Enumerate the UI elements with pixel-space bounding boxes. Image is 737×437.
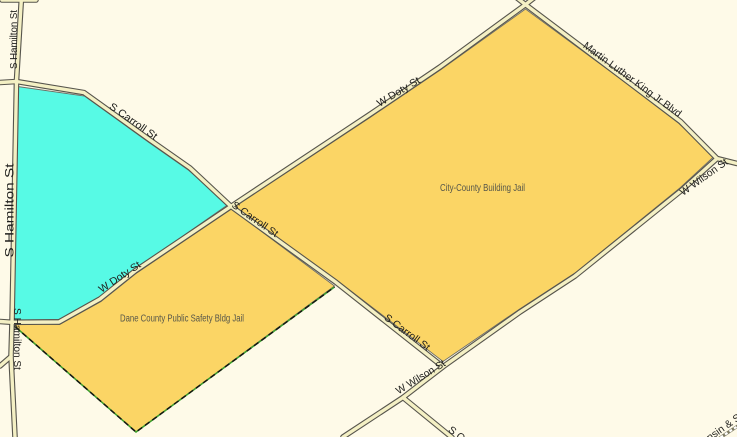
svg-text:S Hamilton St: S Hamilton St — [9, 10, 20, 69]
svg-text:Dane County Public Safety Bldg: Dane County Public Safety Bldg Jail — [120, 314, 244, 325]
svg-text:S Hamilton St: S Hamilton St — [11, 308, 22, 370]
svg-text:City-County Building Jail: City-County Building Jail — [440, 183, 525, 194]
svg-text:S Hamilton St: S Hamilton St — [3, 163, 17, 258]
